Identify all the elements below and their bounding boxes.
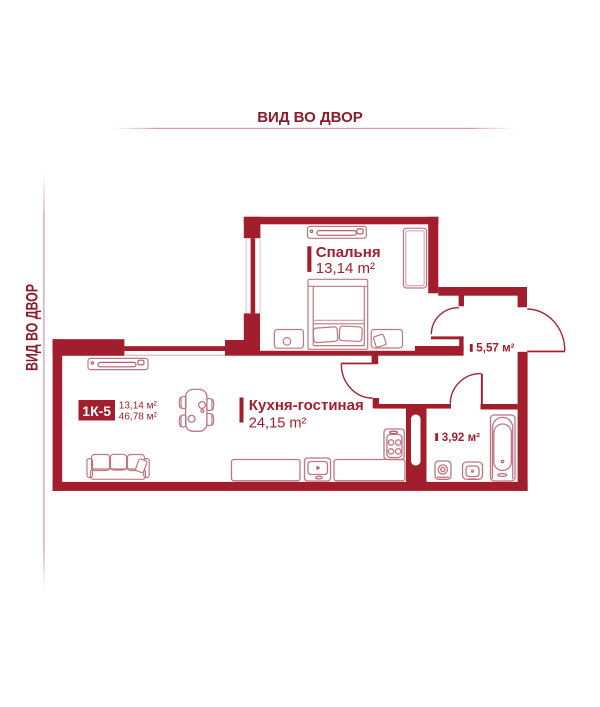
svg-text:ВИД ВО ДВОР: ВИД ВО ДВОР <box>257 109 363 126</box>
svg-text:1К-5: 1К-5 <box>82 403 111 419</box>
svg-text:5,57 м²: 5,57 м² <box>476 342 514 355</box>
svg-text:24,15 m²: 24,15 m² <box>249 416 307 432</box>
svg-text:Кухня-гостиная: Кухня-гостиная <box>249 397 364 414</box>
svg-text:ВИД ВО ДВОР: ВИД ВО ДВОР <box>24 284 42 371</box>
svg-text:13,14 m²: 13,14 m² <box>316 260 375 277</box>
svg-text:13,14 м²: 13,14 м² <box>119 401 158 412</box>
svg-text:Спальня: Спальня <box>316 244 381 261</box>
svg-text:46,78 м²: 46,78 м² <box>119 412 158 423</box>
svg-text:3,92 м²: 3,92 м² <box>442 431 480 444</box>
